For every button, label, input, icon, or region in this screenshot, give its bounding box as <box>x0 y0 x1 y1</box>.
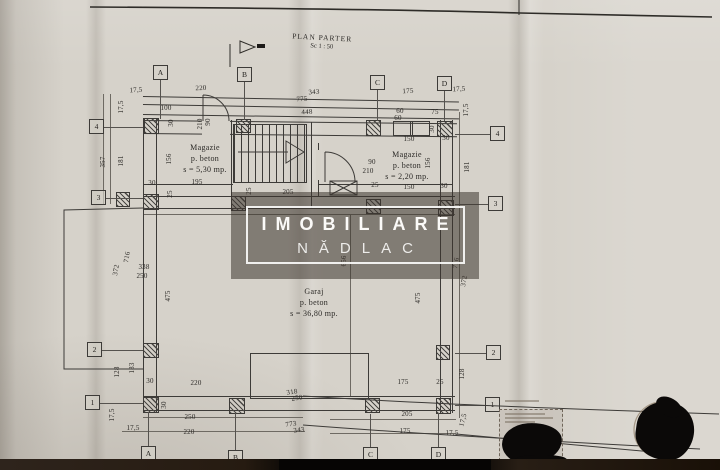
scanned-floor-plan-photo: 17,522034377517517,510044860607530150301… <box>0 0 720 470</box>
watermark-city: NĂDLAC <box>231 240 479 257</box>
photo-background-black <box>279 459 491 470</box>
terrace-outline <box>64 208 144 369</box>
stair-arrow-head <box>286 141 304 163</box>
watermark-overlay: IMOBILIARE NĂDLAC <box>231 192 479 279</box>
north-arrow-icon <box>240 41 255 53</box>
illegible-text-mark <box>505 413 545 415</box>
door-arc-right-room <box>325 152 355 182</box>
sheet-border-line <box>90 7 712 17</box>
illegible-text-mark <box>505 400 539 402</box>
illegible-text-mark <box>505 417 553 419</box>
watermark-brand: IMOBILIARE <box>231 214 479 235</box>
door-arc-left-room <box>203 95 229 121</box>
